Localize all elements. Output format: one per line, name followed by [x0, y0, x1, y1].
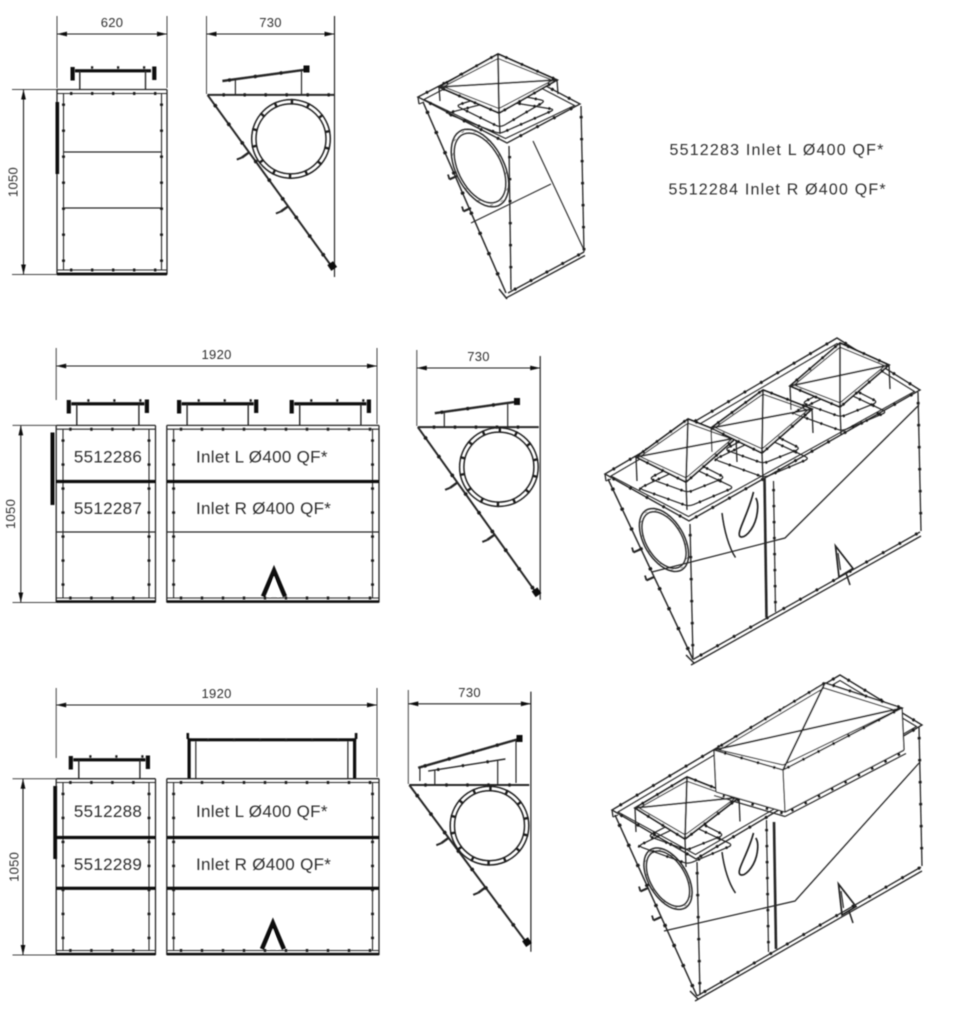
svg-text:730: 730: [458, 685, 481, 700]
svg-text:5512287: 5512287: [74, 499, 142, 518]
svg-text:1050: 1050: [6, 167, 21, 197]
svg-text:5512283 Inlet L Ø400 QF*: 5512283 Inlet L Ø400 QF*: [670, 142, 885, 159]
svg-text:1050: 1050: [3, 499, 18, 529]
svg-text:730: 730: [259, 15, 282, 30]
svg-text:Inlet R Ø400 QF*: Inlet R Ø400 QF*: [196, 499, 331, 518]
svg-text:Inlet R Ø400 QF*: Inlet R Ø400 QF*: [196, 855, 331, 874]
svg-text:1920: 1920: [202, 686, 232, 701]
svg-text:5512288: 5512288: [74, 802, 142, 821]
svg-text:Inlet L Ø400 QF*: Inlet L Ø400 QF*: [196, 802, 328, 821]
svg-text:5512286: 5512286: [74, 447, 142, 466]
svg-text:Inlet L Ø400 QF*: Inlet L Ø400 QF*: [196, 447, 328, 466]
svg-text:1920: 1920: [202, 347, 232, 362]
svg-text:5512289: 5512289: [74, 855, 142, 874]
svg-text:730: 730: [467, 349, 490, 364]
svg-text:5512284 Inlet R Ø400 QF*: 5512284 Inlet R Ø400 QF*: [669, 182, 887, 199]
svg-text:1050: 1050: [7, 852, 22, 882]
svg-text:620: 620: [101, 15, 124, 30]
